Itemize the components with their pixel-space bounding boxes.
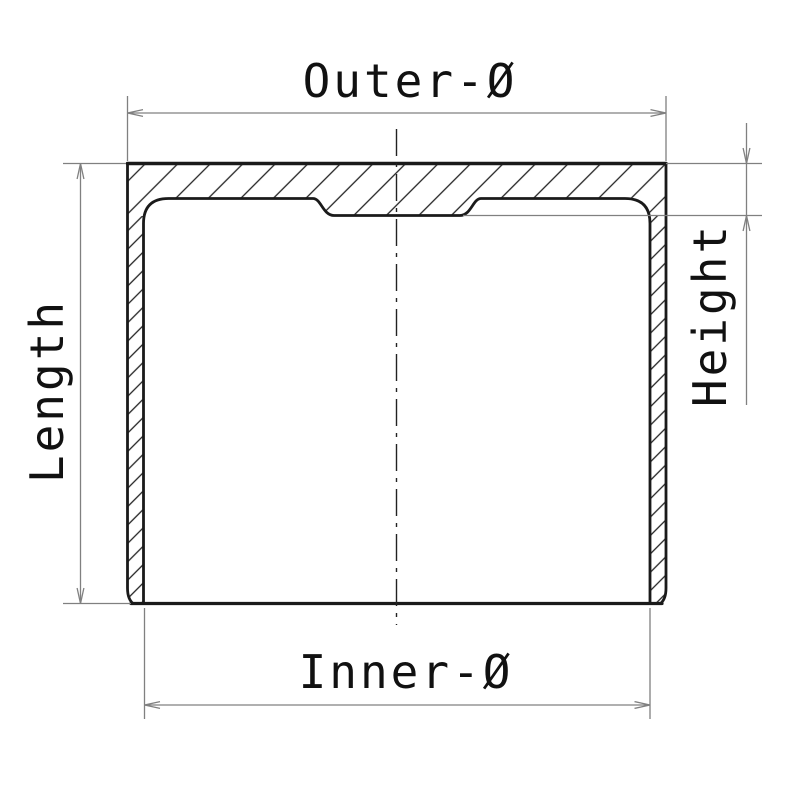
inner-diameter-label: Inner-Ø xyxy=(299,645,514,699)
cross-section-drawing: Outer-Ø Inner-Ø Length Height xyxy=(0,0,800,800)
height-label: Height xyxy=(683,223,737,407)
length-label: Length xyxy=(20,299,74,483)
technical-drawing-canvas: Outer-Ø Inner-Ø Length Height xyxy=(0,0,800,800)
outer-diameter-label: Outer-Ø xyxy=(303,54,518,108)
